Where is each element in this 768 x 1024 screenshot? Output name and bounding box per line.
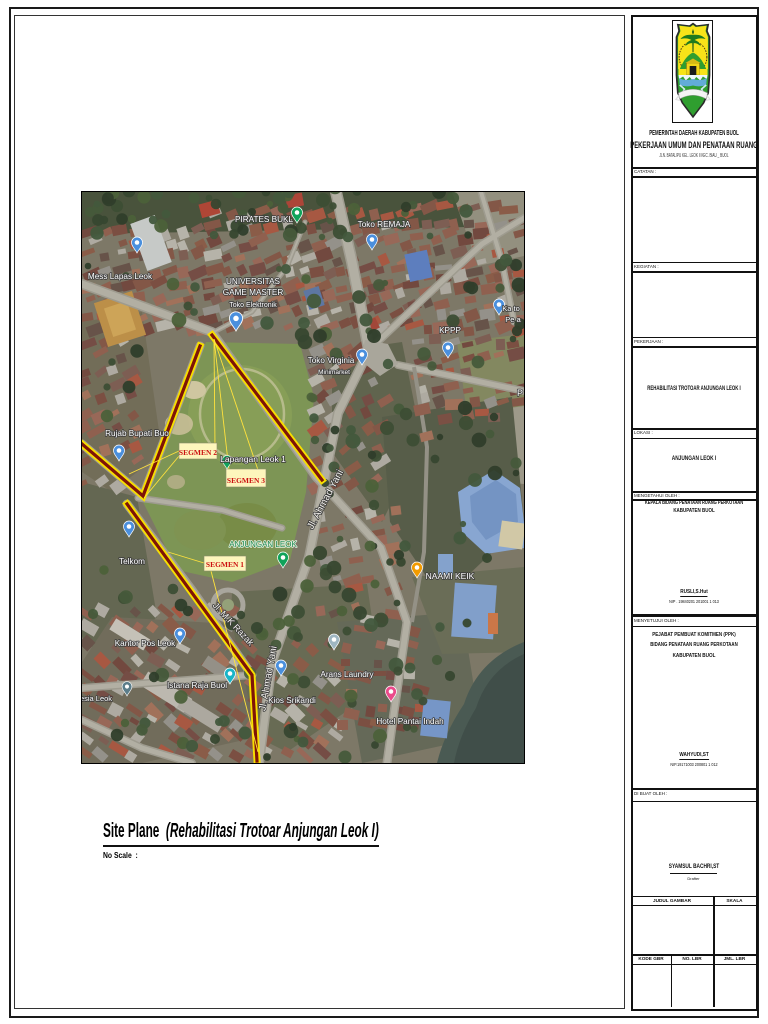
svg-text:Arans Laundry: Arans Laundry	[320, 670, 374, 679]
svg-text:ANJUNGAN LEOK: ANJUNGAN LEOK	[229, 540, 297, 549]
svg-text:Kios Srikandi: Kios Srikandi	[268, 696, 316, 705]
svg-text:Kantor Pos Leok: Kantor Pos Leok	[115, 639, 176, 648]
svg-text:Istana Raja Buol: Istana Raja Buol	[167, 681, 227, 690]
svg-text:Toko Elektronik: Toko Elektronik	[229, 302, 277, 309]
svg-text:Rujab Bupati Buo: Rujab Bupati Buo	[105, 429, 169, 438]
svg-text:P: P	[517, 388, 523, 398]
svg-text:Pe a: Pe a	[505, 315, 521, 324]
svg-text:SEGMEN 1: SEGMEN 1	[206, 560, 244, 569]
svg-text:NAAMI KEIK: NAAMI KEIK	[426, 571, 475, 581]
svg-text:Toko REMAJA: Toko REMAJA	[358, 220, 411, 229]
svg-text:SEGMEN 3: SEGMEN 3	[227, 476, 265, 485]
svg-text:Hotel Pantai Indah: Hotel Pantai Indah	[376, 717, 444, 726]
svg-text:Ka to: Ka to	[502, 304, 520, 313]
svg-text:Toko Virginia: Toko Virginia	[308, 356, 355, 365]
svg-text:SEGMEN 2: SEGMEN 2	[179, 448, 217, 457]
svg-text:Lapangan Leok 1: Lapangan Leok 1	[220, 454, 286, 464]
svg-text:PIRATES BUKL: PIRATES BUKL	[235, 215, 294, 224]
svg-text:esia Leok: esia Leok	[82, 694, 112, 703]
svg-text:Mess Lapas Leok: Mess Lapas Leok	[88, 272, 153, 281]
svg-text:UNIVERSITAS: UNIVERSITAS	[226, 277, 281, 286]
svg-text:Minimarket: Minimarket	[318, 369, 350, 376]
svg-text:Telkom: Telkom	[119, 557, 145, 566]
svg-text:KPPP: KPPP	[439, 326, 461, 335]
svg-text:GAME MASTER: GAME MASTER	[223, 288, 284, 297]
